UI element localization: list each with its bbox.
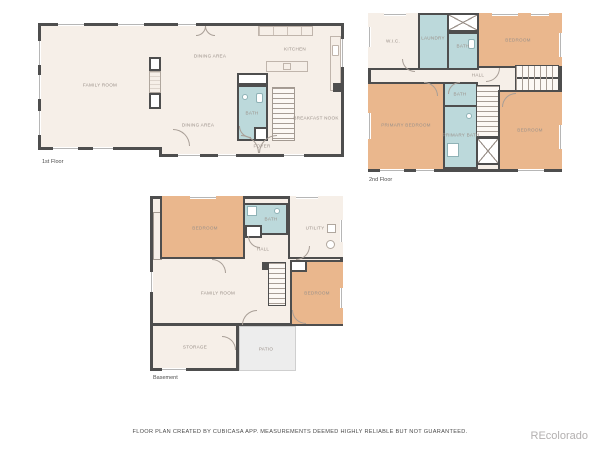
window: [93, 147, 113, 150]
disclaimer-text: FLOOR PLAN CREATED BY CUBICASA APP. MEAS…: [0, 429, 600, 435]
floorplan-sheet: FAMILY ROOM DINING AREA KITCHEN DINING A…: [0, 0, 600, 450]
window: [368, 113, 371, 139]
floor-label-basement: Basement: [153, 375, 178, 381]
window: [178, 23, 196, 26]
room-label-family-room-bsmt: FAMILY ROOM: [201, 291, 235, 296]
room-label-bath-bsmt: BATH: [265, 217, 278, 222]
room-label-dining-area-bottom: DINING AREA: [182, 123, 214, 128]
room-label-bath-2f-top: BATH: [457, 44, 470, 49]
window: [559, 33, 562, 57]
kitchen-sink: [332, 45, 339, 56]
room-label-bedroom-bsmt-top: BEDROOM: [192, 226, 218, 231]
room-label-laundry: LAUNDRY: [421, 36, 445, 41]
window: [284, 154, 304, 157]
room-label-wic: W.I.C.: [386, 39, 400, 44]
window: [218, 154, 236, 157]
first-floor-plan: FAMILY ROOM DINING AREA KITCHEN DINING A…: [38, 23, 344, 157]
shower: [447, 143, 459, 157]
closet-x-bottom: [476, 137, 500, 165]
staircase-1f: [272, 87, 295, 141]
window: [38, 111, 41, 135]
cabinet-upper: [149, 57, 161, 71]
window: [150, 272, 153, 292]
staircase-2f-main: [476, 85, 500, 137]
window: [38, 41, 41, 65]
room-bath-2f-top: [447, 32, 479, 70]
window: [118, 23, 144, 26]
brand-watermark: REcolorado: [531, 430, 588, 442]
cabinet-lower: [149, 93, 161, 109]
shower: [247, 206, 257, 216]
water-heater: [326, 240, 335, 249]
floor-label-2nd: 2nd Floor: [369, 177, 392, 183]
island-cooktop: [283, 63, 291, 70]
room-label-storage: STORAGE: [183, 345, 207, 350]
staircase-bsmt: [268, 262, 286, 306]
window: [190, 196, 216, 199]
room-label-bedroom-bsmt-right: BEDROOM: [304, 291, 330, 296]
room-label-foyer: FOYER: [253, 144, 270, 149]
closet-x-top: [447, 13, 479, 32]
bath-sink: [466, 113, 472, 119]
toilet: [256, 93, 263, 103]
bedroom-closet-bsmt: [290, 260, 307, 272]
window: [340, 288, 343, 308]
basement-plan: BEDROOM BATH UTILITY HALL FAMILY ROOM BE…: [150, 196, 344, 378]
room-laundry: [418, 13, 449, 70]
window: [531, 13, 549, 16]
window: [178, 154, 200, 157]
room-label-hall-bsmt: HALL: [257, 247, 270, 252]
room-label-kitchen: KITCHEN: [284, 47, 306, 52]
bath-sink: [274, 208, 280, 214]
wall-stub-block: [333, 83, 342, 92]
room-label-primary-bedroom: PRIMARY BEDROOM: [381, 123, 431, 128]
window: [296, 196, 318, 199]
room-label-bath-2f-mid: BATH: [454, 92, 467, 97]
room-label-patio: PATIO: [259, 347, 273, 352]
window: [492, 13, 518, 16]
room-label-bath-1f: BATH: [246, 111, 259, 116]
window: [58, 23, 84, 26]
window: [340, 220, 343, 242]
fireplace-column: [149, 71, 161, 93]
window: [518, 169, 544, 172]
window: [380, 169, 404, 172]
bath-closet: [237, 73, 268, 85]
kitchen-counter-top: [258, 26, 313, 36]
furnace: [327, 224, 336, 233]
window: [384, 13, 406, 16]
window: [416, 169, 434, 172]
second-floor-plan: W.I.C. LAUNDRY BATH BEDROOM HALL PRIMARY…: [368, 13, 562, 172]
room-label-bedroom-2f-right: BEDROOM: [517, 128, 543, 133]
window: [162, 368, 186, 371]
room-label-primary-bath: PRIMARY BATH: [443, 133, 480, 138]
room-label-dining-area-top: DINING AREA: [194, 54, 226, 59]
staircase-2f-down: [515, 65, 559, 91]
window: [53, 147, 78, 150]
floor-label-1st: 1st Floor: [42, 159, 63, 165]
room-label-family-room: FAMILY ROOM: [83, 83, 117, 88]
window: [38, 75, 41, 99]
bath-sink: [242, 94, 248, 100]
room-label-breakfast-nook: BREAKFAST NOOK: [293, 116, 338, 121]
window: [559, 125, 562, 149]
room-label-hall-2f: HALL: [472, 73, 485, 78]
window: [368, 27, 371, 47]
stair-wall-stub: [262, 262, 269, 270]
room-label-utility: UTILITY: [306, 226, 325, 231]
window: [341, 39, 344, 67]
room-label-bedroom-2f-top: BEDROOM: [505, 38, 531, 43]
